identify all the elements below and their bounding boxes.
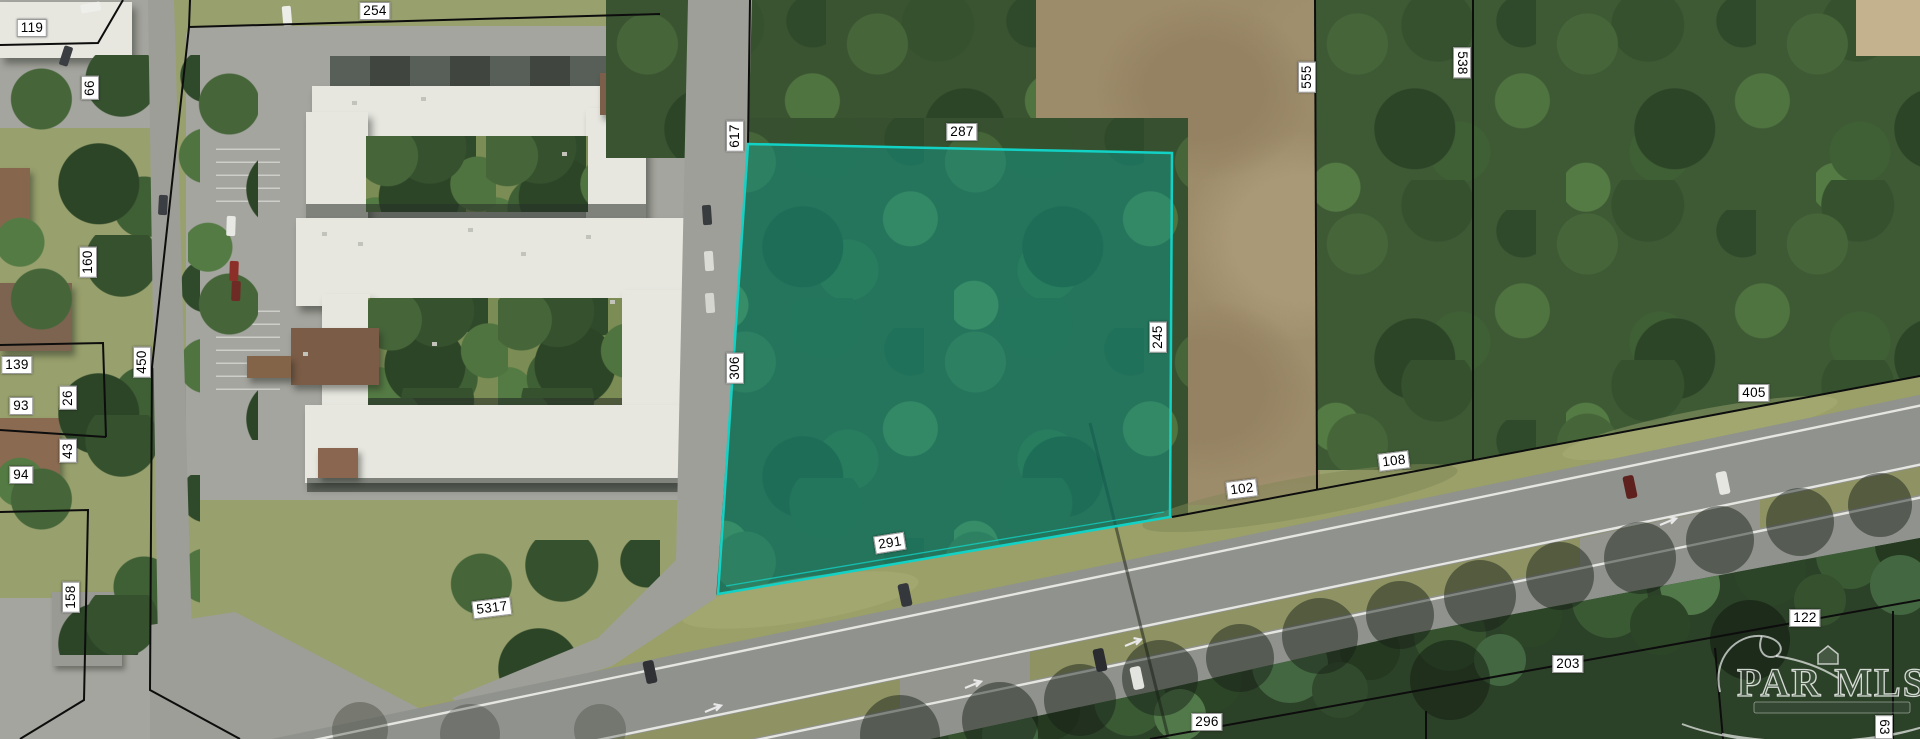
dimension-label-291: 291 — [873, 532, 907, 555]
dimension-label-405: 405 — [1738, 384, 1769, 402]
dimension-label-203: 203 — [1552, 655, 1583, 673]
dimension-label-158: 158 — [62, 581, 80, 612]
dimension-label-306: 306 — [726, 352, 744, 383]
dimension-label-63: 63 — [1875, 715, 1893, 739]
dimension-label-139: 139 — [1, 356, 32, 374]
dimension-label-538: 538 — [1453, 47, 1471, 78]
dimension-label-94: 94 — [9, 466, 33, 484]
dimension-label-66: 66 — [81, 76, 99, 100]
dimension-label-245: 245 — [1149, 321, 1167, 352]
dimension-label-450: 450 — [133, 346, 151, 377]
dimension-label-93: 93 — [9, 397, 33, 415]
dimension-label-555: 555 — [1298, 61, 1316, 92]
dimension-label-160: 160 — [79, 246, 97, 277]
aerial-map-canvas: PAR MLS 11966254160450139932643941585317… — [0, 0, 1920, 739]
dimension-label-296: 296 — [1191, 713, 1222, 731]
dimension-label-122: 122 — [1789, 609, 1820, 627]
dimension-label-108: 108 — [1377, 450, 1410, 472]
dimension-label-5317: 5317 — [471, 597, 512, 620]
dimension-label-287: 287 — [946, 123, 977, 141]
dimension-label-43: 43 — [59, 439, 77, 463]
dimension-labels-layer: 1196625416045013993264394158531761730628… — [0, 0, 1920, 739]
dimension-label-254: 254 — [359, 2, 390, 20]
dimension-label-26: 26 — [59, 386, 77, 410]
dimension-label-102: 102 — [1225, 478, 1258, 500]
dimension-label-617: 617 — [726, 120, 744, 151]
dimension-label-119: 119 — [17, 19, 47, 37]
